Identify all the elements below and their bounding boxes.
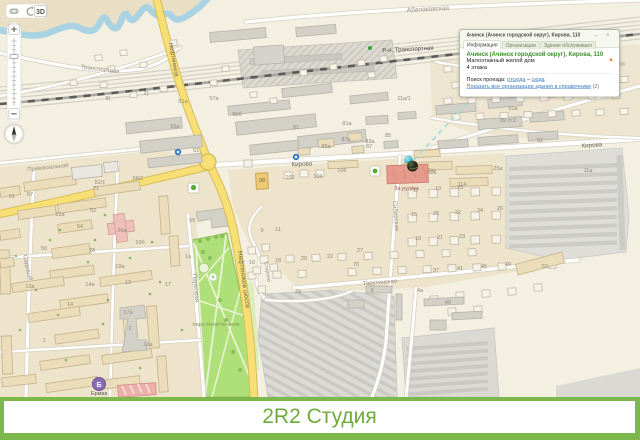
svg-text:2): 2) <box>144 91 149 97</box>
svg-text:52/1: 52/1 <box>95 180 106 186</box>
svg-text:1а: 1а <box>185 254 192 260</box>
svg-text:23: 23 <box>457 185 463 191</box>
svg-text:41: 41 <box>457 266 463 272</box>
svg-text:16: 16 <box>249 260 255 266</box>
svg-text:13а: 13а <box>25 284 35 290</box>
svg-text:67: 67 <box>27 192 33 198</box>
svg-text:22: 22 <box>455 210 461 216</box>
svg-text:85: 85 <box>385 133 391 139</box>
svg-text:71: 71 <box>93 186 99 192</box>
svg-text:За рулём: За рулём <box>394 186 418 192</box>
svg-text:парк Нефтяников: парк Нефтяников <box>193 322 240 328</box>
svg-text:100: 100 <box>285 175 294 181</box>
svg-text:22: 22 <box>327 254 333 260</box>
svg-text:25а: 25а <box>493 166 503 172</box>
svg-text:50: 50 <box>41 246 47 252</box>
svg-text:20: 20 <box>301 256 307 262</box>
svg-text:81а: 81а <box>342 121 352 127</box>
svg-text:20: 20 <box>433 211 439 217</box>
svg-text:11а/1: 11а/1 <box>397 96 410 102</box>
svg-text:70: 70 <box>353 262 359 268</box>
svg-text:18: 18 <box>415 236 421 242</box>
svg-text:Кирова: Кирова <box>291 160 312 168</box>
svg-text:4а: 4а <box>417 288 424 294</box>
svg-text:26: 26 <box>497 206 503 212</box>
svg-text:2а: 2а <box>295 289 302 295</box>
svg-text:11а: 11а <box>584 168 594 174</box>
svg-text:2: 2 <box>128 326 131 332</box>
svg-text:52: 52 <box>90 208 96 214</box>
svg-text:89 ст2: 89 ст2 <box>500 118 516 124</box>
svg-text:19б: 19б <box>135 240 144 246</box>
svg-text:51: 51 <box>193 148 199 154</box>
svg-text:91а: 91а <box>508 106 518 112</box>
svg-text:18а: 18а <box>143 342 153 348</box>
svg-text:55а: 55а <box>170 124 180 130</box>
svg-text:55б: 55б <box>232 112 241 118</box>
svg-text:104: 104 <box>313 174 322 180</box>
svg-text:8): 8) <box>106 96 111 102</box>
svg-text:37: 37 <box>433 268 439 274</box>
svg-text:17: 17 <box>165 282 171 288</box>
svg-text:13: 13 <box>125 280 131 286</box>
svg-text:18: 18 <box>275 258 281 264</box>
svg-text:4б: 4б <box>445 300 451 306</box>
svg-text:61: 61 <box>9 194 15 200</box>
svg-text:87: 87 <box>366 144 372 150</box>
svg-text:19а: 19а <box>115 264 125 270</box>
svg-text:59: 59 <box>189 218 195 224</box>
svg-text:Кирова: Кирова <box>581 141 603 149</box>
svg-text:52а: 52а <box>55 212 65 218</box>
svg-text:54: 54 <box>77 224 83 230</box>
svg-text:3D: 3D <box>36 9 45 16</box>
svg-text:11: 11 <box>275 227 281 233</box>
svg-text:81: 81 <box>293 125 299 131</box>
svg-text:15: 15 <box>411 212 417 218</box>
svg-text:23: 23 <box>459 234 465 240</box>
svg-text:92: 92 <box>537 138 543 144</box>
svg-text:24: 24 <box>477 208 483 214</box>
svg-text:9: 9 <box>370 288 373 294</box>
svg-text:1: 1 <box>42 338 45 344</box>
svg-text:28: 28 <box>89 248 95 254</box>
svg-text:14: 14 <box>67 302 73 308</box>
svg-text:27: 27 <box>357 248 363 254</box>
svg-text:98: 98 <box>259 178 265 184</box>
svg-text:85а: 85а <box>321 144 331 150</box>
svg-text:19: 19 <box>435 186 441 192</box>
svg-text:56/2: 56/2 <box>133 176 144 182</box>
svg-text:45: 45 <box>481 264 487 270</box>
svg-text:Б: Б <box>96 382 101 389</box>
svg-text:57а: 57а <box>209 96 219 102</box>
svg-text:17а: 17а <box>123 310 133 316</box>
svg-text:53: 53 <box>542 264 548 270</box>
svg-text:26а: 26а <box>117 228 127 234</box>
svg-text:⚘: ⚘ <box>211 275 215 281</box>
svg-text:14а: 14а <box>85 282 95 288</box>
svg-text:51а: 51а <box>178 99 188 105</box>
svg-text:9: 9 <box>260 228 263 234</box>
svg-text:106: 106 <box>337 168 346 174</box>
svg-text:21: 21 <box>437 235 443 241</box>
svg-text:87а: 87а <box>341 137 351 143</box>
svg-text:49: 49 <box>505 262 511 268</box>
